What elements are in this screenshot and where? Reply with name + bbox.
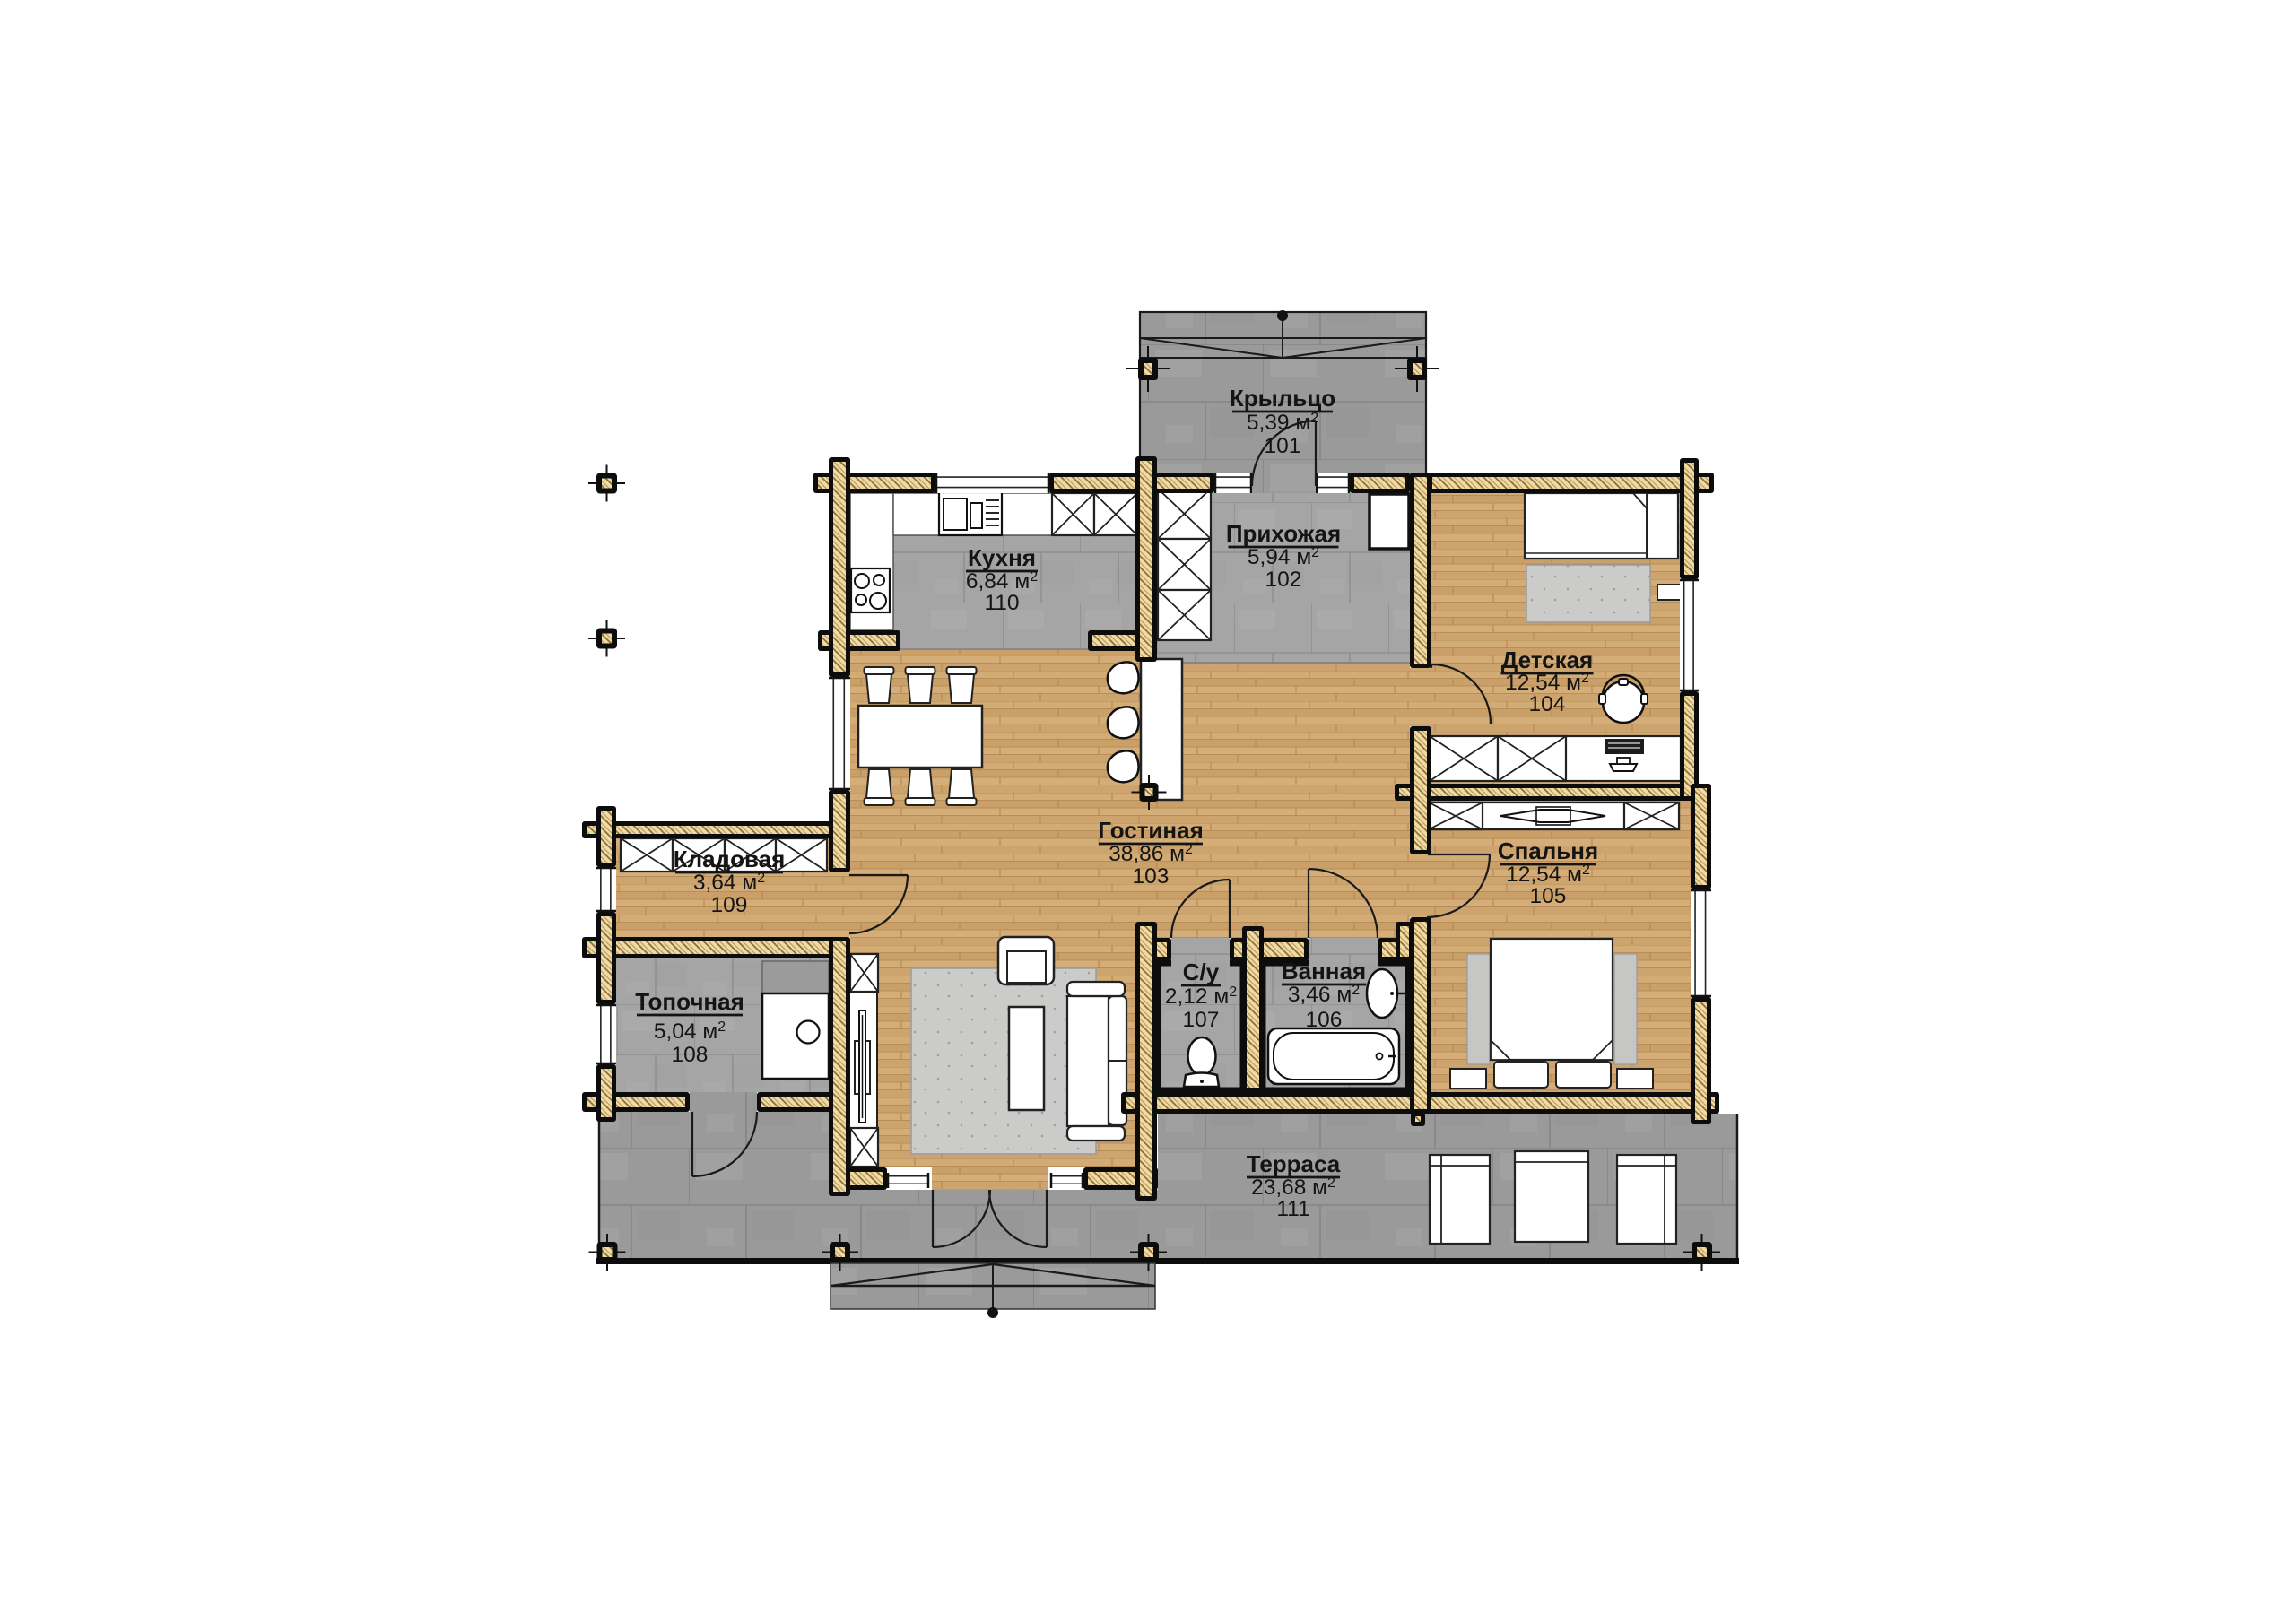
svg-text:С/у: С/у: [1183, 958, 1220, 985]
svg-text:12,54 м2: 12,54 м2: [1506, 863, 1590, 887]
svg-text:23,68 м2: 23,68 м2: [1251, 1175, 1335, 1200]
svg-text:5,39 м2: 5,39 м2: [1247, 411, 1318, 435]
svg-text:Ванная: Ванная: [1282, 958, 1366, 984]
svg-text:Детская: Детская: [1501, 646, 1593, 673]
svg-text:3,46 м2: 3,46 м2: [1288, 983, 1360, 1007]
svg-text:110: 110: [984, 591, 1019, 615]
svg-text:Прихожая: Прихожая: [1226, 520, 1341, 547]
svg-text:5,04 м2: 5,04 м2: [654, 1019, 726, 1044]
svg-text:12,54 м2: 12,54 м2: [1505, 671, 1589, 695]
svg-text:Крыльцо: Крыльцо: [1230, 385, 1335, 412]
svg-text:38,86 м2: 38,86 м2: [1109, 842, 1193, 866]
svg-text:106: 106: [1306, 1008, 1343, 1032]
svg-text:6,84 м2: 6,84 м2: [966, 569, 1038, 594]
svg-text:107: 107: [1183, 1008, 1220, 1032]
svg-text:3,64 м2: 3,64 м2: [693, 871, 765, 895]
svg-text:Кухня: Кухня: [968, 544, 1036, 571]
svg-text:5,94 м2: 5,94 м2: [1248, 545, 1319, 569]
svg-text:109: 109: [711, 893, 748, 917]
svg-text:101: 101: [1265, 434, 1301, 458]
svg-text:104: 104: [1529, 692, 1566, 716]
svg-text:Кладовая: Кладовая: [674, 846, 786, 872]
svg-text:Спальня: Спальня: [1498, 837, 1598, 864]
svg-text:111: 111: [1276, 1197, 1309, 1221]
svg-text:103: 103: [1133, 864, 1170, 889]
svg-text:Терраса: Терраса: [1247, 1150, 1341, 1177]
svg-text:2,12 м2: 2,12 м2: [1165, 984, 1237, 1009]
svg-text:105: 105: [1530, 884, 1567, 908]
svg-text:108: 108: [672, 1043, 709, 1067]
svg-text:Гостиная: Гостиная: [1098, 817, 1204, 844]
svg-text:102: 102: [1265, 568, 1302, 592]
svg-text:Топочная: Топочная: [635, 988, 744, 1015]
